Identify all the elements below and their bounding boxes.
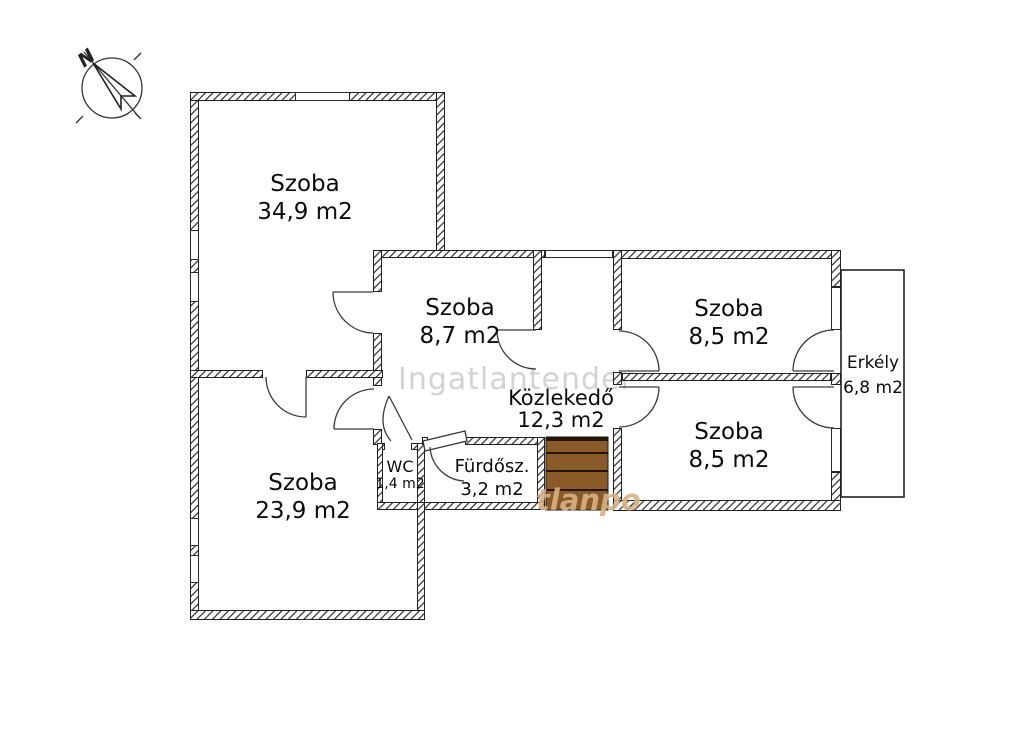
wall [622,373,831,381]
wall [417,502,425,620]
room-area: 6,8 m2 [828,376,918,401]
window [831,287,841,330]
wall [613,250,841,259]
window [545,250,613,258]
wall [190,370,263,378]
room-label-szoba-85-top: Szoba 8,5 m2 [654,295,804,351]
room-label-erkely: Erkély 6,8 m2 [828,351,918,401]
compass-north-label: N [74,45,100,72]
window [190,518,199,546]
wall [373,250,382,292]
room-area: 34,9 m2 [210,198,400,226]
room-label-szoba-349: Szoba 34,9 m2 [210,170,400,226]
wall [422,437,428,445]
room-area: 23,9 m2 [208,497,398,525]
window [190,555,199,583]
window [190,272,199,302]
window [295,92,350,101]
room-area: 1,4 m2 [374,476,426,492]
room-name: Közlekedő [470,387,652,409]
stairs [546,437,608,510]
room-name: Szoba [385,294,535,322]
room-name: Szoba [210,170,400,198]
room-name: Szoba [654,295,804,323]
room-area: 3,2 m2 [430,478,554,501]
wall [613,428,622,510]
room-name: Szoba [208,469,398,497]
wall [831,250,841,287]
room-name: WC [374,458,426,476]
wall [306,370,383,378]
room-label-kozlekedo: Közlekedő 12,3 m2 [470,387,652,431]
room-name: Fürdősz. [430,455,554,478]
wall [613,250,622,330]
room-name: Szoba [654,418,804,446]
wall [613,372,622,385]
floor-plan: Ingatlantender [0,0,1024,750]
room-label-furdoszoba: Fürdősz. 3,2 m2 [430,455,554,501]
room-area: 8,5 m2 [654,323,804,351]
room-label-wc: WC 1,4 m2 [374,458,426,492]
wall [373,250,545,258]
wall [373,333,382,386]
room-area: 8,5 m2 [654,446,804,474]
wall [613,500,841,511]
stairs-fill [546,437,608,510]
wall [190,610,425,620]
wall [436,92,445,258]
wall [377,502,545,510]
room-area: 12,3 m2 [470,409,652,431]
room-label-szoba-239: Szoba 23,9 m2 [208,469,398,525]
room-label-szoba-87: Szoba 8,7 m2 [385,294,535,350]
room-name: Erkély [828,351,918,376]
room-area: 8,7 m2 [385,322,535,350]
room-label-szoba-85-bottom: Szoba 8,5 m2 [654,418,804,474]
wall [465,437,545,445]
window [190,230,199,260]
compass-icon: N [74,45,142,123]
window [831,428,841,472]
